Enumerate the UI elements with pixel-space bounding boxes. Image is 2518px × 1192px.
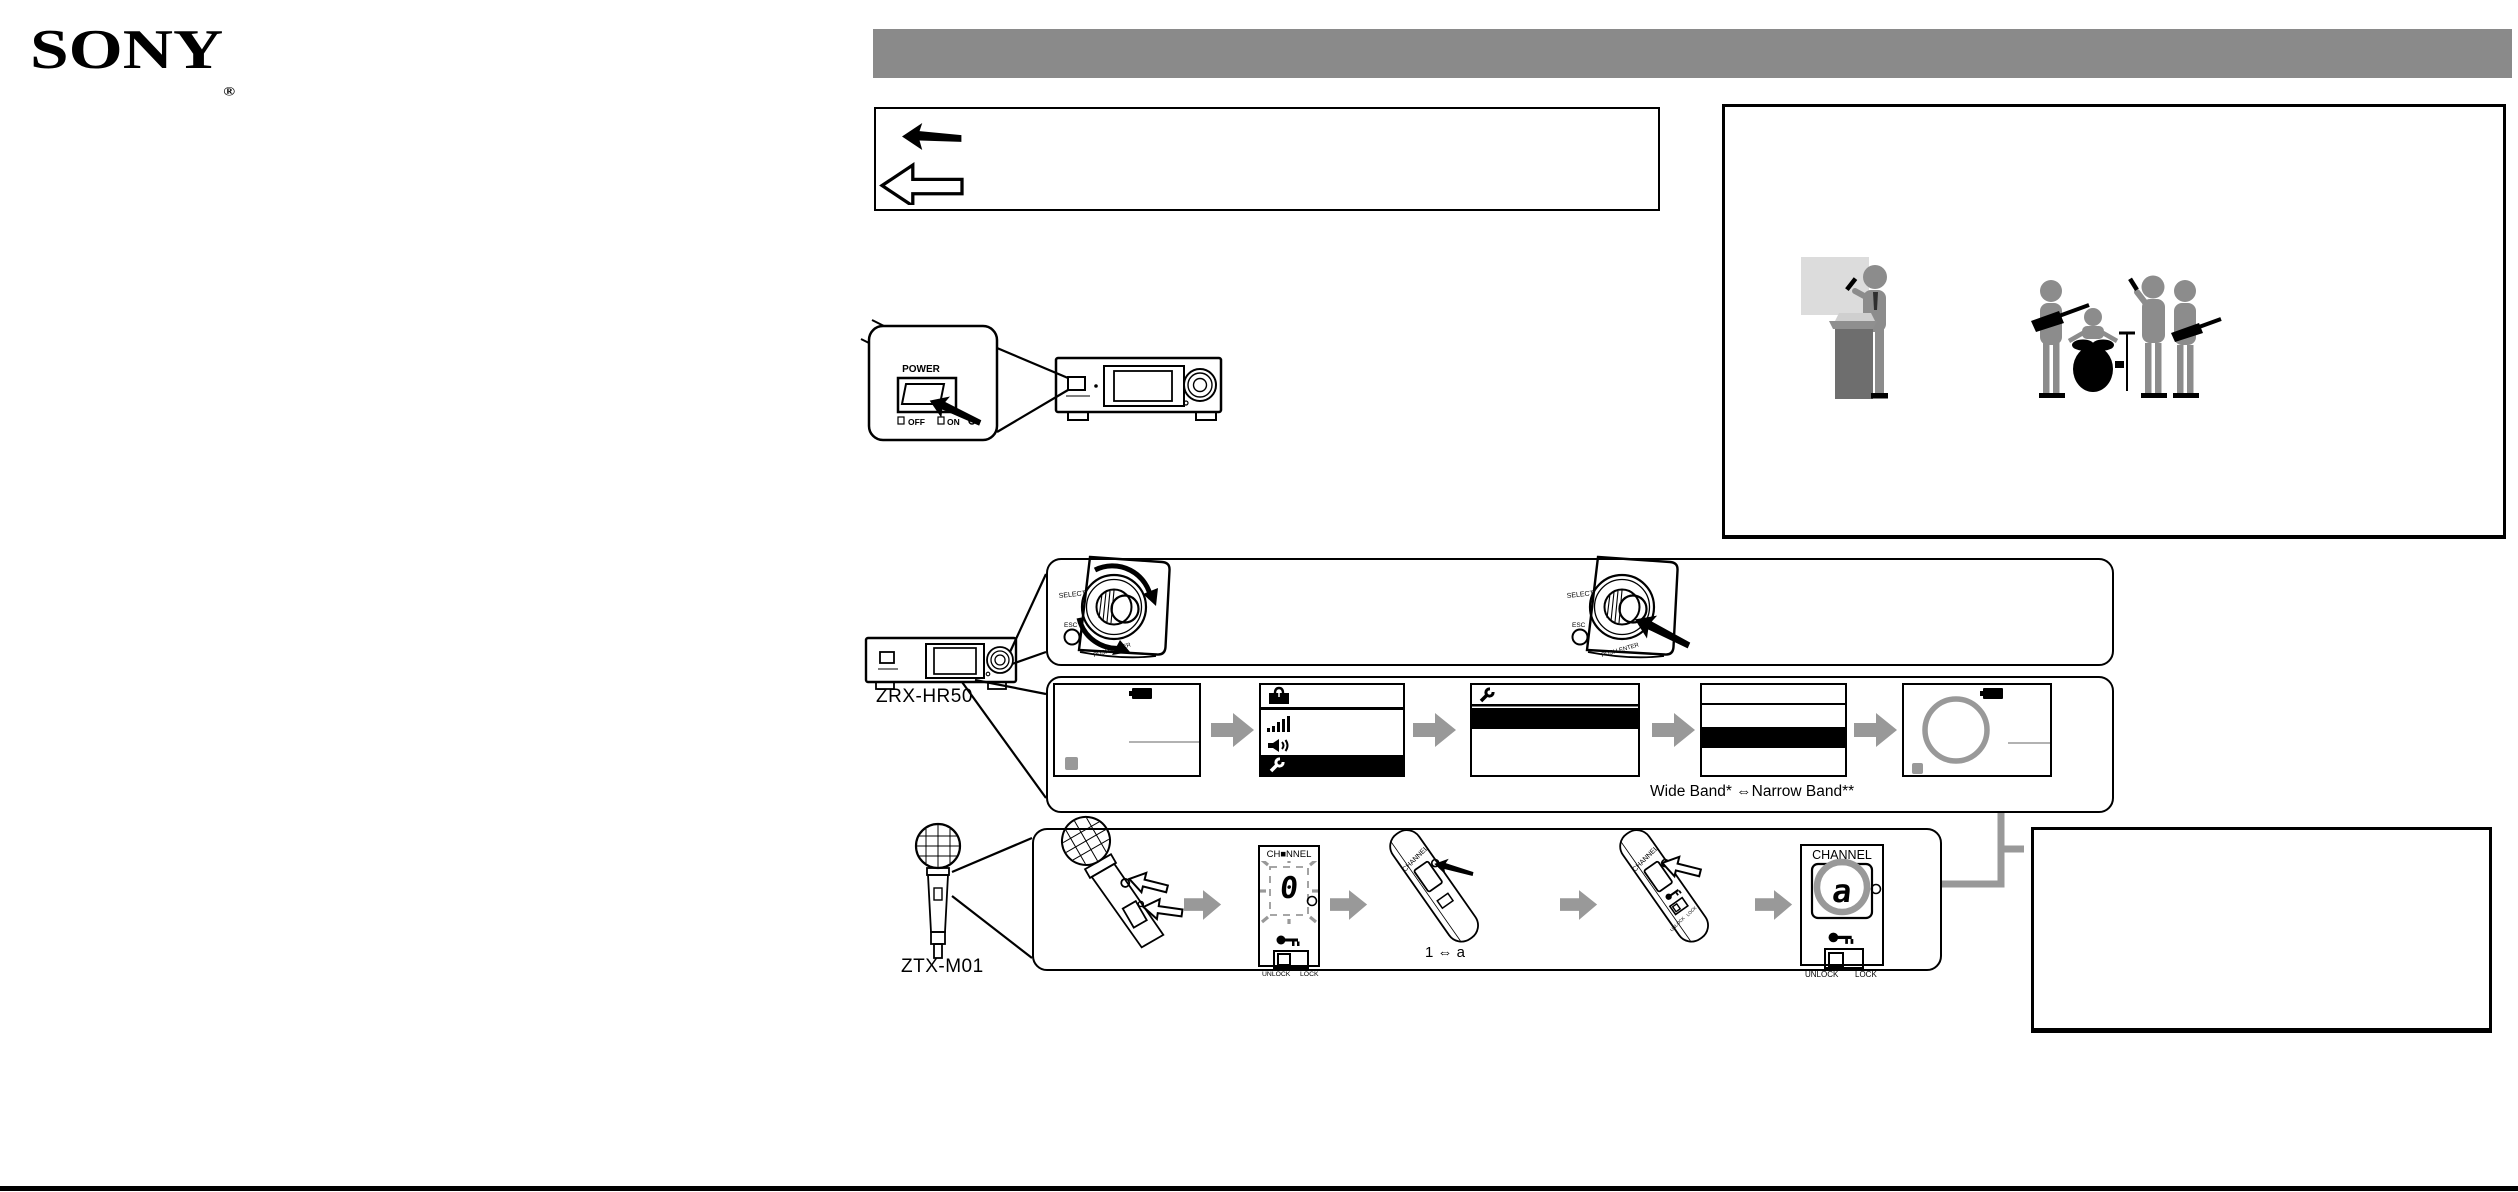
flow-arrow-icon: [1211, 713, 1255, 747]
receiver-front-icon: [1056, 358, 1221, 420]
lock-switch-icon: [1273, 950, 1309, 969]
handheld-mic-illustration: [898, 810, 1018, 970]
esc-button-icon: [1065, 630, 1080, 645]
lock-label: LOCK: [1300, 971, 1319, 978]
flow-arrow-icon: [1330, 890, 1368, 920]
receiver-model-label: ZRX-HR50: [876, 686, 973, 708]
manual-page: SONY® POWER OFF ON: [0, 0, 2518, 1192]
flow-arrow-icon: [1652, 713, 1696, 747]
turn-knob-illustration: SELECT ESC PUSH ENTER: [1052, 556, 1187, 666]
outline-arrow-icon: [1660, 853, 1703, 882]
speaker-icon: [1268, 739, 1288, 752]
esc-label: ESC: [1572, 622, 1586, 629]
power-on-illustration: POWER OFF ON: [850, 315, 1250, 465]
flow-arrow-icon: [1755, 890, 1793, 920]
sony-logo: SONY®: [30, 18, 235, 99]
wrench-icon: [1481, 687, 1496, 701]
registered-mark-icon: ®: [223, 84, 235, 99]
transmitter-model-label: ZTX-M01: [901, 956, 984, 978]
band-figure: [2031, 276, 2221, 399]
power-label: POWER: [902, 364, 941, 375]
channel-digit: 0: [1258, 871, 1320, 906]
signal-strength-icon: [1267, 716, 1290, 732]
outline-arrow-icon: [1142, 897, 1183, 922]
lcd-screen-status: [1053, 683, 1201, 777]
key-icon: [1828, 932, 1856, 945]
lcd-screen-settings: [1470, 683, 1640, 777]
page-bottom-rule: [0, 1186, 2518, 1191]
unlock-label: UNLOCK: [1262, 971, 1290, 978]
flow-arrow-icon: [1854, 713, 1898, 747]
outline-left-arrow-icon: [882, 165, 962, 205]
channel-title: CH■NNEL: [1260, 849, 1318, 860]
section-title-banner: [873, 29, 2512, 78]
mic-buttons-illustration: [1036, 824, 1196, 969]
usage-scene-box: [1722, 104, 2506, 539]
filled-left-arrow-icon: [902, 123, 961, 150]
flow-arrow-icon: [1184, 890, 1222, 920]
lcd-screen-channel: [1902, 683, 2052, 777]
channel-digit: a: [1810, 872, 1874, 910]
on-label: ON: [947, 417, 960, 427]
band-note-label: Wide Band* ⇔Narrow Band**: [1650, 783, 1900, 801]
battery-icon: [1129, 688, 1152, 699]
flow-arrow-icon: [1560, 890, 1598, 920]
legend-box: [874, 107, 1660, 211]
esc-button-icon: [1573, 630, 1588, 645]
unlock-label: UNLOCK: [1805, 970, 1838, 979]
lcd-screen-band-select: [1700, 683, 1847, 777]
highlight-circle-icon: [1925, 699, 1987, 761]
lock-switch-icon: [1824, 948, 1864, 969]
channel-display-flashing: CH■NNEL 0 UNLOCK LOCK: [1258, 845, 1320, 967]
lock-label: LOCK: [1855, 970, 1877, 979]
esc-label: ESC: [1064, 622, 1078, 629]
press-knob-illustration: SELECT ESC PUSH ENTER: [1560, 556, 1710, 666]
key-icon: [1276, 935, 1302, 947]
channel-display-final: CHANNEL a UNLOCK LOCK: [1800, 844, 1884, 966]
channel-toggle-note: 1 ⇔ a: [1425, 944, 1525, 961]
presenter-at-podium-figure: [1801, 257, 1888, 399]
off-label: OFF: [908, 417, 925, 427]
battery-icon: [1980, 688, 2003, 699]
lcd-screen-menu: [1259, 683, 1405, 777]
toolbox-icon: [1269, 688, 1289, 704]
note-box: [2031, 827, 2492, 1033]
mic-confirm-illustration: CHANNEL UNLOCK LOCK: [1602, 826, 1752, 966]
flow-arrow-icon: [1413, 713, 1457, 747]
outline-arrow-icon: [1127, 869, 1170, 898]
